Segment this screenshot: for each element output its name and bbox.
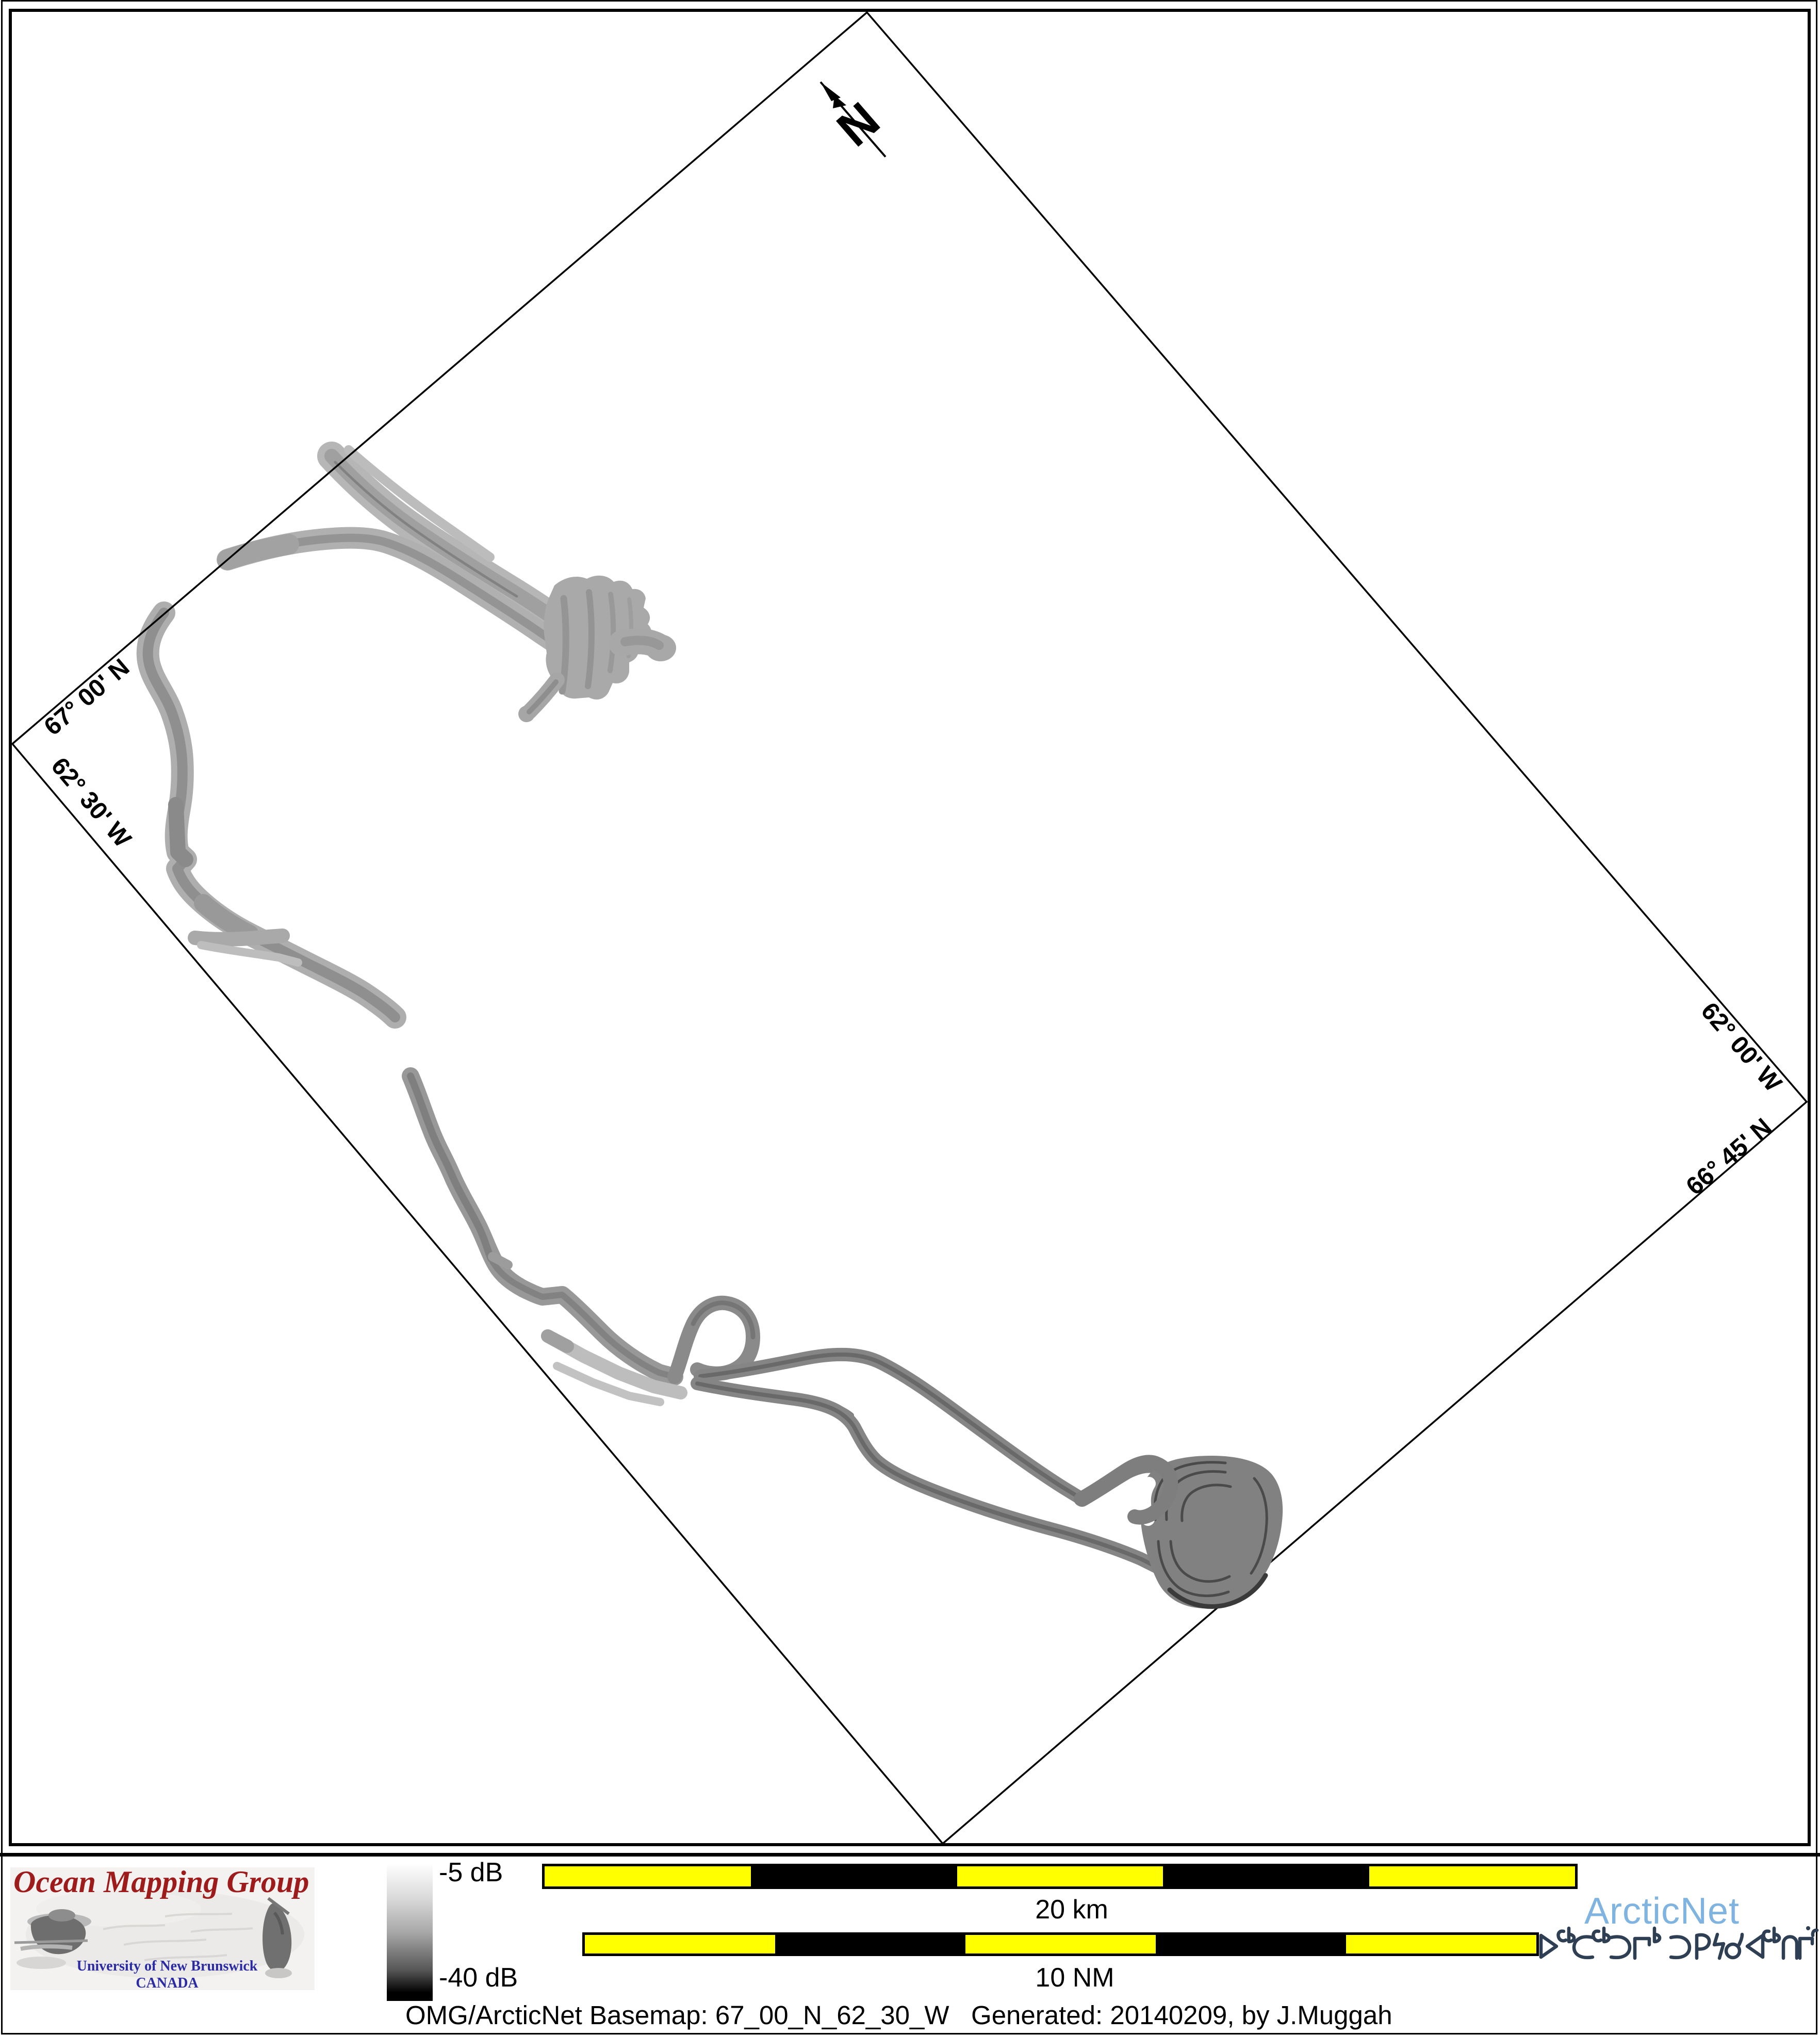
svg-text:67° 00' N: 67° 00' N [39,654,135,741]
svg-text:66° 45' N: 66° 45' N [1681,1113,1777,1201]
svg-text:62° 00' W: 62° 00' W [1696,998,1787,1098]
